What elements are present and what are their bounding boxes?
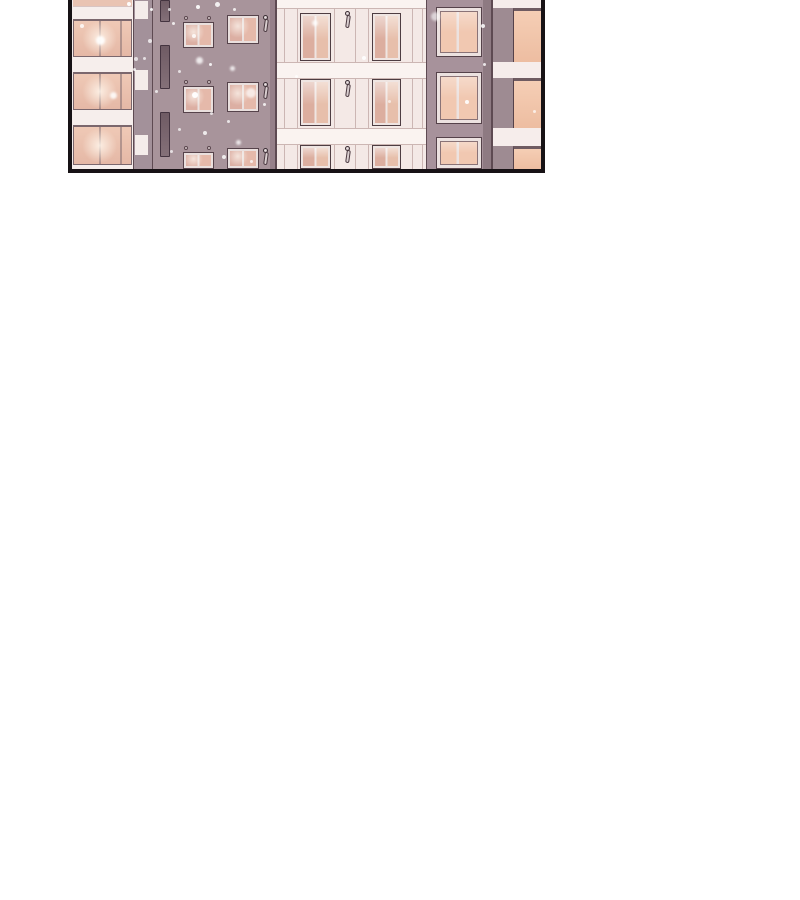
snow-dot: [222, 155, 226, 159]
lamp-body: [263, 19, 269, 32]
facade-block: [135, 1, 148, 19]
window: [436, 72, 482, 124]
facade-block: [277, 0, 427, 8]
window: [227, 15, 259, 44]
snow-dot: [133, 68, 136, 71]
window-panes: [440, 11, 478, 53]
window: [372, 13, 401, 61]
snow-dot: [533, 110, 536, 113]
snow-dot: [148, 39, 152, 43]
wall-lamp: [263, 148, 271, 168]
window-panes: [186, 89, 211, 110]
snow-dot: [172, 22, 175, 25]
snow-dot: [481, 24, 485, 28]
snow-dot: [150, 8, 153, 11]
window-panes: [230, 18, 256, 41]
snow-dot: [431, 12, 440, 21]
snow-dot: [170, 150, 173, 153]
vent-ring: [184, 80, 188, 84]
wall-lamp: [345, 146, 353, 166]
slit-window: [160, 0, 170, 22]
facade-block: [277, 62, 427, 63]
page-background: [0, 0, 800, 900]
panel-art: [72, 0, 541, 169]
snow-dot: [263, 103, 266, 106]
facade-block: [135, 70, 148, 90]
facade-block: [133, 0, 134, 169]
window-panes: [186, 25, 211, 45]
lamp-body: [345, 150, 351, 163]
window: [513, 146, 541, 169]
snow-dot: [192, 34, 196, 38]
window: [300, 79, 331, 126]
window-panes: [230, 151, 256, 166]
wall-lamp: [263, 15, 271, 35]
facade-block: [493, 0, 541, 8]
snow-dot: [246, 88, 256, 98]
slit-window: [160, 112, 170, 157]
wall-lamp: [345, 11, 353, 31]
vent-ring: [207, 16, 211, 20]
wall-lamp: [345, 80, 353, 100]
window: [436, 7, 482, 57]
window: [513, 8, 541, 62]
window-panes: [440, 141, 478, 165]
window-panes: [303, 148, 328, 166]
facade-block: [493, 62, 541, 78]
snow-dot: [209, 63, 212, 66]
snow-dot: [168, 8, 171, 11]
snow-dot: [230, 66, 235, 71]
snow-dot: [196, 5, 200, 9]
window: [372, 145, 401, 169]
snow-dot: [236, 140, 241, 145]
vent-ring: [184, 146, 188, 150]
window-panes: [186, 155, 211, 166]
snow-dot: [465, 100, 469, 104]
lamp-body: [345, 84, 351, 97]
window: [436, 137, 482, 169]
lamp-body: [263, 86, 269, 99]
window: [73, 72, 132, 110]
lamp-body: [263, 152, 269, 165]
window-panes: [375, 16, 398, 58]
snow-dot: [210, 112, 213, 115]
vent-ring: [207, 80, 211, 84]
facade-block: [277, 128, 427, 145]
facade-block: [277, 8, 427, 9]
window: [227, 148, 259, 169]
snow-dot: [203, 131, 207, 135]
snow-dot: [192, 92, 198, 98]
vent-ring: [184, 16, 188, 20]
snow-dot: [483, 63, 486, 66]
facade-block: [493, 128, 541, 146]
facade-block: [277, 62, 427, 79]
snow-dot: [143, 57, 146, 60]
vent-ring: [207, 146, 211, 150]
snow-dot: [96, 36, 105, 45]
lamp-body: [345, 15, 351, 28]
window: [183, 152, 214, 169]
window: [227, 82, 259, 112]
snow-dot: [312, 20, 318, 26]
window: [73, 125, 132, 165]
window-panes: [375, 82, 398, 123]
snow-dot: [295, 75, 298, 78]
snow-dot: [215, 2, 220, 7]
window: [183, 86, 214, 113]
snow-dot: [80, 24, 84, 28]
snow-dot: [233, 8, 236, 11]
window: [183, 22, 214, 48]
snow-dot: [155, 90, 158, 93]
snow-dot: [178, 70, 181, 73]
snow-dot: [178, 128, 181, 131]
facade-block: [277, 128, 427, 129]
snow-dot: [127, 2, 131, 6]
snow-dot: [110, 92, 117, 99]
window-panes: [375, 148, 398, 166]
facade-block: [135, 135, 148, 155]
window: [513, 78, 541, 128]
slit-window: [160, 45, 170, 89]
snow-dot: [134, 57, 138, 61]
snow-dot: [227, 120, 230, 123]
window-panes: [303, 82, 328, 123]
comic-panel: [68, 0, 545, 173]
facade-block: [73, 6, 132, 7]
window-panes: [440, 76, 478, 120]
window: [372, 79, 401, 126]
snow-dot: [196, 57, 203, 64]
snow-dot: [388, 100, 391, 103]
wall-lamp: [263, 82, 271, 102]
snow-dot: [362, 56, 366, 60]
snow-dot: [250, 160, 253, 163]
window: [300, 145, 331, 169]
